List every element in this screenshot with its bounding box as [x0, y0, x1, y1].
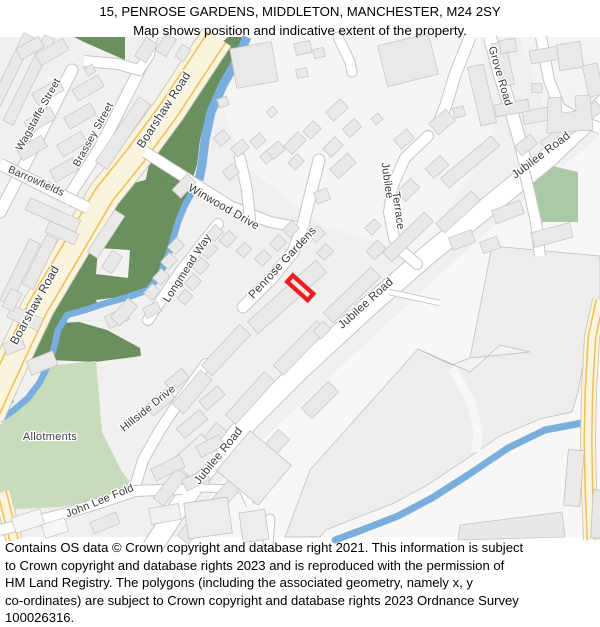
svg-text:Allotments: Allotments: [23, 431, 77, 443]
